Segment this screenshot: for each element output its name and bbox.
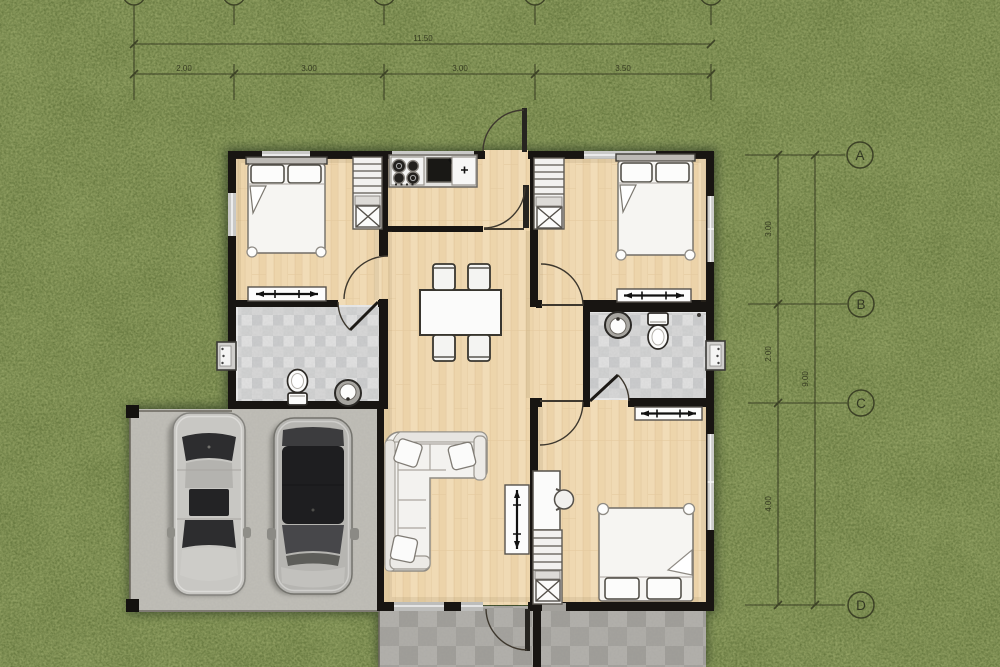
- svg-text:3.50: 3.50: [615, 64, 631, 73]
- svg-text:A: A: [855, 148, 864, 163]
- svg-text:4.00: 4.00: [764, 496, 773, 512]
- svg-text:9.00: 9.00: [801, 371, 810, 387]
- svg-text:2.00: 2.00: [176, 64, 192, 73]
- svg-text:D: D: [856, 598, 866, 613]
- svg-text:2.00: 2.00: [764, 346, 773, 362]
- svg-text:3.00: 3.00: [764, 221, 773, 237]
- svg-text:B: B: [856, 297, 865, 312]
- svg-text:3.00: 3.00: [452, 64, 468, 73]
- svg-text:11.50: 11.50: [413, 34, 433, 43]
- svg-text:3.00: 3.00: [301, 64, 317, 73]
- svg-text:C: C: [856, 396, 866, 411]
